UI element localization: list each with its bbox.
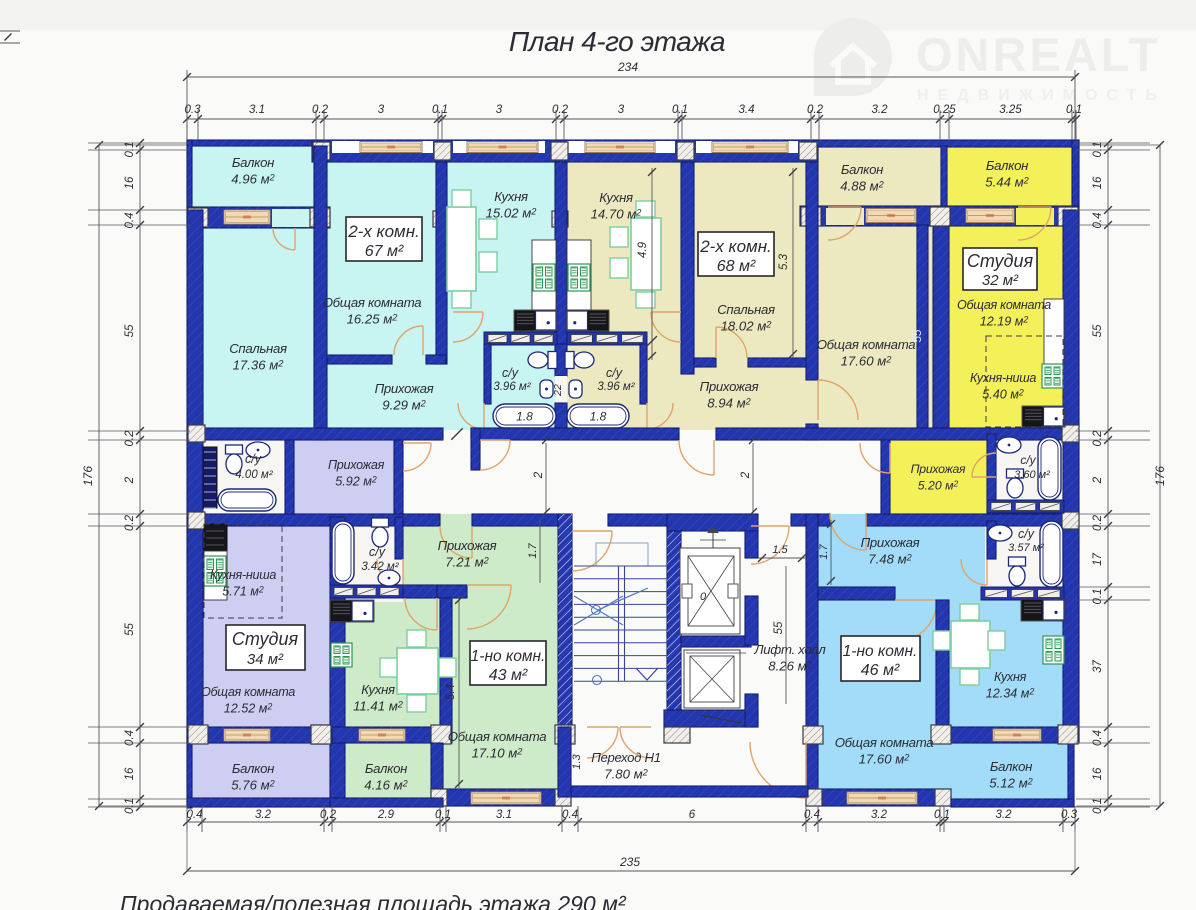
svg-text:15.02 м2: 15.02 м2 [486,206,537,221]
svg-text:17: 17 [1092,553,1104,566]
svg-text:1.3: 1.3 [571,753,583,769]
svg-text:3.2: 3.2 [255,809,272,821]
svg-text:4.9: 4.9 [637,241,649,258]
svg-text:8.94 м2: 8.94 м2 [707,396,751,411]
svg-text:0.25: 0.25 [933,104,956,116]
svg-text:5.92 м2: 5.92 м2 [335,475,377,489]
svg-text:3.1: 3.1 [249,104,265,116]
svg-text:3.2: 3.2 [996,809,1013,821]
svg-text:Общая комната: Общая комната [323,295,422,310]
svg-text:12.52 м2: 12.52 м2 [224,702,273,716]
svg-text:0.4: 0.4 [187,809,203,821]
svg-text:1.5: 1.5 [772,544,788,556]
svg-text:16: 16 [124,767,136,780]
svg-text:0.1: 0.1 [432,104,448,116]
svg-text:Общая комната: Общая комната [957,298,1051,312]
svg-text:5.71 м2: 5.71 м2 [222,585,264,599]
svg-text:2.9: 2.9 [377,809,395,821]
svg-text:Общая комната: Общая комната [817,337,916,352]
svg-text:0.2: 0.2 [320,809,337,821]
svg-text:1.8: 1.8 [516,410,533,424]
svg-text:0.1: 0.1 [124,142,136,158]
svg-text:Общая комната: Общая комната [448,729,547,744]
svg-text:Переход Н1: Переход Н1 [591,750,661,765]
svg-text:17.60 м2: 17.60 м2 [859,752,910,767]
svg-text:Балкон: Балкон [990,759,1032,774]
svg-text:2: 2 [1092,476,1104,484]
svg-text:3: 3 [618,104,625,116]
svg-text:234: 234 [617,60,638,74]
svg-text:0.3: 0.3 [1061,809,1078,821]
svg-text:0.1: 0.1 [1066,104,1082,116]
svg-text:1-но комн.: 1-но комн. [843,643,918,660]
svg-text:5.3: 5.3 [778,253,790,270]
svg-text:5.12 м2: 5.12 м2 [989,776,1033,791]
svg-text:0.4: 0.4 [124,213,136,229]
svg-text:2-х комн.: 2-х комн. [699,237,772,256]
svg-text:0.1: 0.1 [124,798,136,814]
svg-text:12.19 м2: 12.19 м2 [980,315,1029,329]
svg-text:22: 22 [552,384,564,397]
svg-text:Балкон: Балкон [232,761,274,776]
svg-text:37: 37 [1092,660,1104,673]
svg-text:с/у: с/у [502,366,519,380]
svg-text:16.25 м2: 16.25 м2 [347,312,398,327]
svg-text:3: 3 [378,104,385,116]
svg-text:46 м²: 46 м² [861,662,900,679]
svg-text:11.41 м2: 11.41 м2 [353,699,403,714]
svg-text:1.7: 1.7 [818,543,830,559]
svg-text:Прихожая: Прихожая [438,538,497,553]
svg-text:НЕДВИЖИМОСТЬ: НЕДВИЖИМОСТЬ [917,87,1166,104]
svg-text:0.3: 0.3 [185,104,202,116]
svg-text:Кухня-ниша: Кухня-ниша [970,371,1036,385]
svg-text:Кухня: Кухня [599,190,633,205]
svg-text:3.60 м²: 3.60 м² [1014,469,1050,481]
svg-text:Прихожая: Прихожая [700,379,759,394]
svg-text:5.20 м2: 5.20 м2 [918,479,959,493]
svg-text:55: 55 [124,623,136,636]
svg-text:0.4: 0.4 [562,809,578,821]
svg-text:0.4: 0.4 [124,730,136,746]
svg-text:0.4: 0.4 [1092,730,1104,746]
svg-text:0: 0 [700,591,707,603]
svg-text:16: 16 [1092,767,1104,780]
svg-text:с/у: с/у [369,545,386,559]
svg-text:с/у: с/у [1020,453,1036,467]
svg-text:68 м²: 68 м² [717,258,756,275]
svg-text:2-х комн.: 2-х комн. [347,222,420,241]
svg-text:Общая комната: Общая комната [835,735,934,750]
svg-text:235: 235 [619,855,640,869]
svg-text:0.4: 0.4 [804,809,820,821]
svg-text:Студия: Студия [967,251,1034,271]
svg-text:17.60 м2: 17.60 м2 [841,354,892,369]
svg-text:4.88 м2: 4.88 м2 [840,179,884,194]
svg-text:3.42 м²: 3.42 м² [361,561,399,573]
svg-text:0.1: 0.1 [435,809,451,821]
svg-text:Балкон: Балкон [986,158,1028,173]
svg-text:17.36 м2: 17.36 м2 [233,358,284,373]
svg-text:5.40 м2: 5.40 м2 [982,388,1024,402]
svg-text:0.2: 0.2 [312,104,329,116]
svg-text:с/у: с/у [1018,527,1035,541]
svg-text:Балкон: Балкон [365,761,407,776]
svg-text:0.1: 0.1 [934,809,950,821]
svg-text:Балкон: Балкон [841,162,883,177]
svg-text:4.16 м2: 4.16 м2 [364,778,408,793]
svg-text:0.2: 0.2 [807,104,824,116]
svg-text:176: 176 [1153,466,1167,486]
svg-text:2: 2 [533,471,545,479]
svg-text:Балкон: Балкон [232,155,274,170]
svg-text:7.21 м2: 7.21 м2 [445,555,489,570]
svg-text:0.2: 0.2 [1092,514,1104,531]
svg-text:Кухня: Кухня [994,670,1027,684]
svg-text:4.96 м2: 4.96 м2 [231,172,275,187]
svg-text:Прихожая: Прихожая [375,381,434,396]
svg-text:Прихожая: Прихожая [861,535,920,550]
svg-text:с/у: с/у [606,366,623,380]
svg-text:3: 3 [496,104,503,116]
svg-text:32 м²: 32 м² [982,272,1019,289]
svg-text:7.48 м2: 7.48 м2 [868,552,912,567]
svg-text:6: 6 [689,809,696,821]
svg-text:0.2: 0.2 [124,514,136,531]
svg-text:3.4: 3.4 [739,104,755,116]
svg-text:Спальная: Спальная [229,341,287,356]
svg-text:2: 2 [740,471,752,479]
svg-text:0.2: 0.2 [124,430,136,447]
svg-text:3.96 м²: 3.96 м² [493,381,531,393]
svg-text:4.00 м²: 4.00 м² [235,469,273,481]
svg-text:Спальная: Спальная [717,302,775,317]
svg-text:Кухня: Кухня [361,682,395,697]
svg-text:55: 55 [124,324,136,337]
svg-text:43 м²: 43 м² [489,667,528,684]
svg-text:17.10 м2: 17.10 м2 [472,746,523,761]
svg-text:2: 2 [124,476,136,484]
svg-text:с/у: с/у [245,452,262,466]
svg-text:9.29 м2: 9.29 м2 [382,398,426,413]
svg-text:12.34 м2: 12.34 м2 [986,687,1035,701]
svg-text:5.76 м2: 5.76 м2 [231,778,275,793]
svg-text:0.1: 0.1 [1092,589,1104,605]
svg-text:0.2: 0.2 [552,104,569,116]
svg-text:3.25: 3.25 [999,104,1022,116]
svg-text:0.2: 0.2 [1092,430,1104,447]
svg-text:0.1: 0.1 [1092,142,1104,158]
svg-text:Кухня-ниша: Кухня-ниша [210,568,276,582]
svg-text:Продаваемая/полезная площадь э: Продаваемая/полезная площадь этажа 290 м… [120,891,627,910]
svg-text:0.4: 0.4 [1092,213,1104,229]
svg-text:176: 176 [81,466,95,486]
svg-text:Общая комната: Общая комната [201,685,295,699]
svg-text:55: 55 [912,329,924,342]
svg-text:Прихожая: Прихожая [911,462,966,476]
svg-text:Лифт. холл: Лифт. холл [754,642,827,657]
svg-text:5.4: 5.4 [445,684,457,700]
svg-text:3.1: 3.1 [496,809,512,821]
svg-text:0.1: 0.1 [672,104,688,116]
svg-text:Студия: Студия [232,629,299,649]
svg-text:8.26 м2: 8.26 м2 [768,659,812,674]
svg-text:3.57 м²: 3.57 м² [1008,542,1044,554]
svg-text:3.96 м²: 3.96 м² [597,381,635,393]
svg-text:67 м²: 67 м² [365,243,404,260]
svg-text:3.2: 3.2 [871,809,888,821]
svg-text:55: 55 [773,621,785,634]
svg-text:1.7: 1.7 [527,542,539,558]
svg-text:Прихожая: Прихожая [328,458,385,472]
svg-text:1.8: 1.8 [590,410,607,424]
svg-text:18.02 м2: 18.02 м2 [721,319,772,334]
svg-text:1-но комн.: 1-но комн. [471,648,546,665]
svg-text:3.2: 3.2 [872,104,889,116]
svg-text:План 4-го этажа: План 4-го этажа [509,26,725,57]
svg-text:5.44 м2: 5.44 м2 [985,175,1029,190]
svg-text:14.70 м2: 14.70 м2 [591,207,642,222]
svg-text:Кухня: Кухня [494,189,528,204]
svg-text:34 м²: 34 м² [247,651,284,668]
svg-text:7.80 м2: 7.80 м2 [604,767,648,782]
svg-text:16: 16 [124,176,136,189]
svg-text:ONREALT: ONREALT [916,28,1161,81]
svg-text:16: 16 [1092,176,1104,189]
svg-text:55: 55 [1092,324,1104,337]
